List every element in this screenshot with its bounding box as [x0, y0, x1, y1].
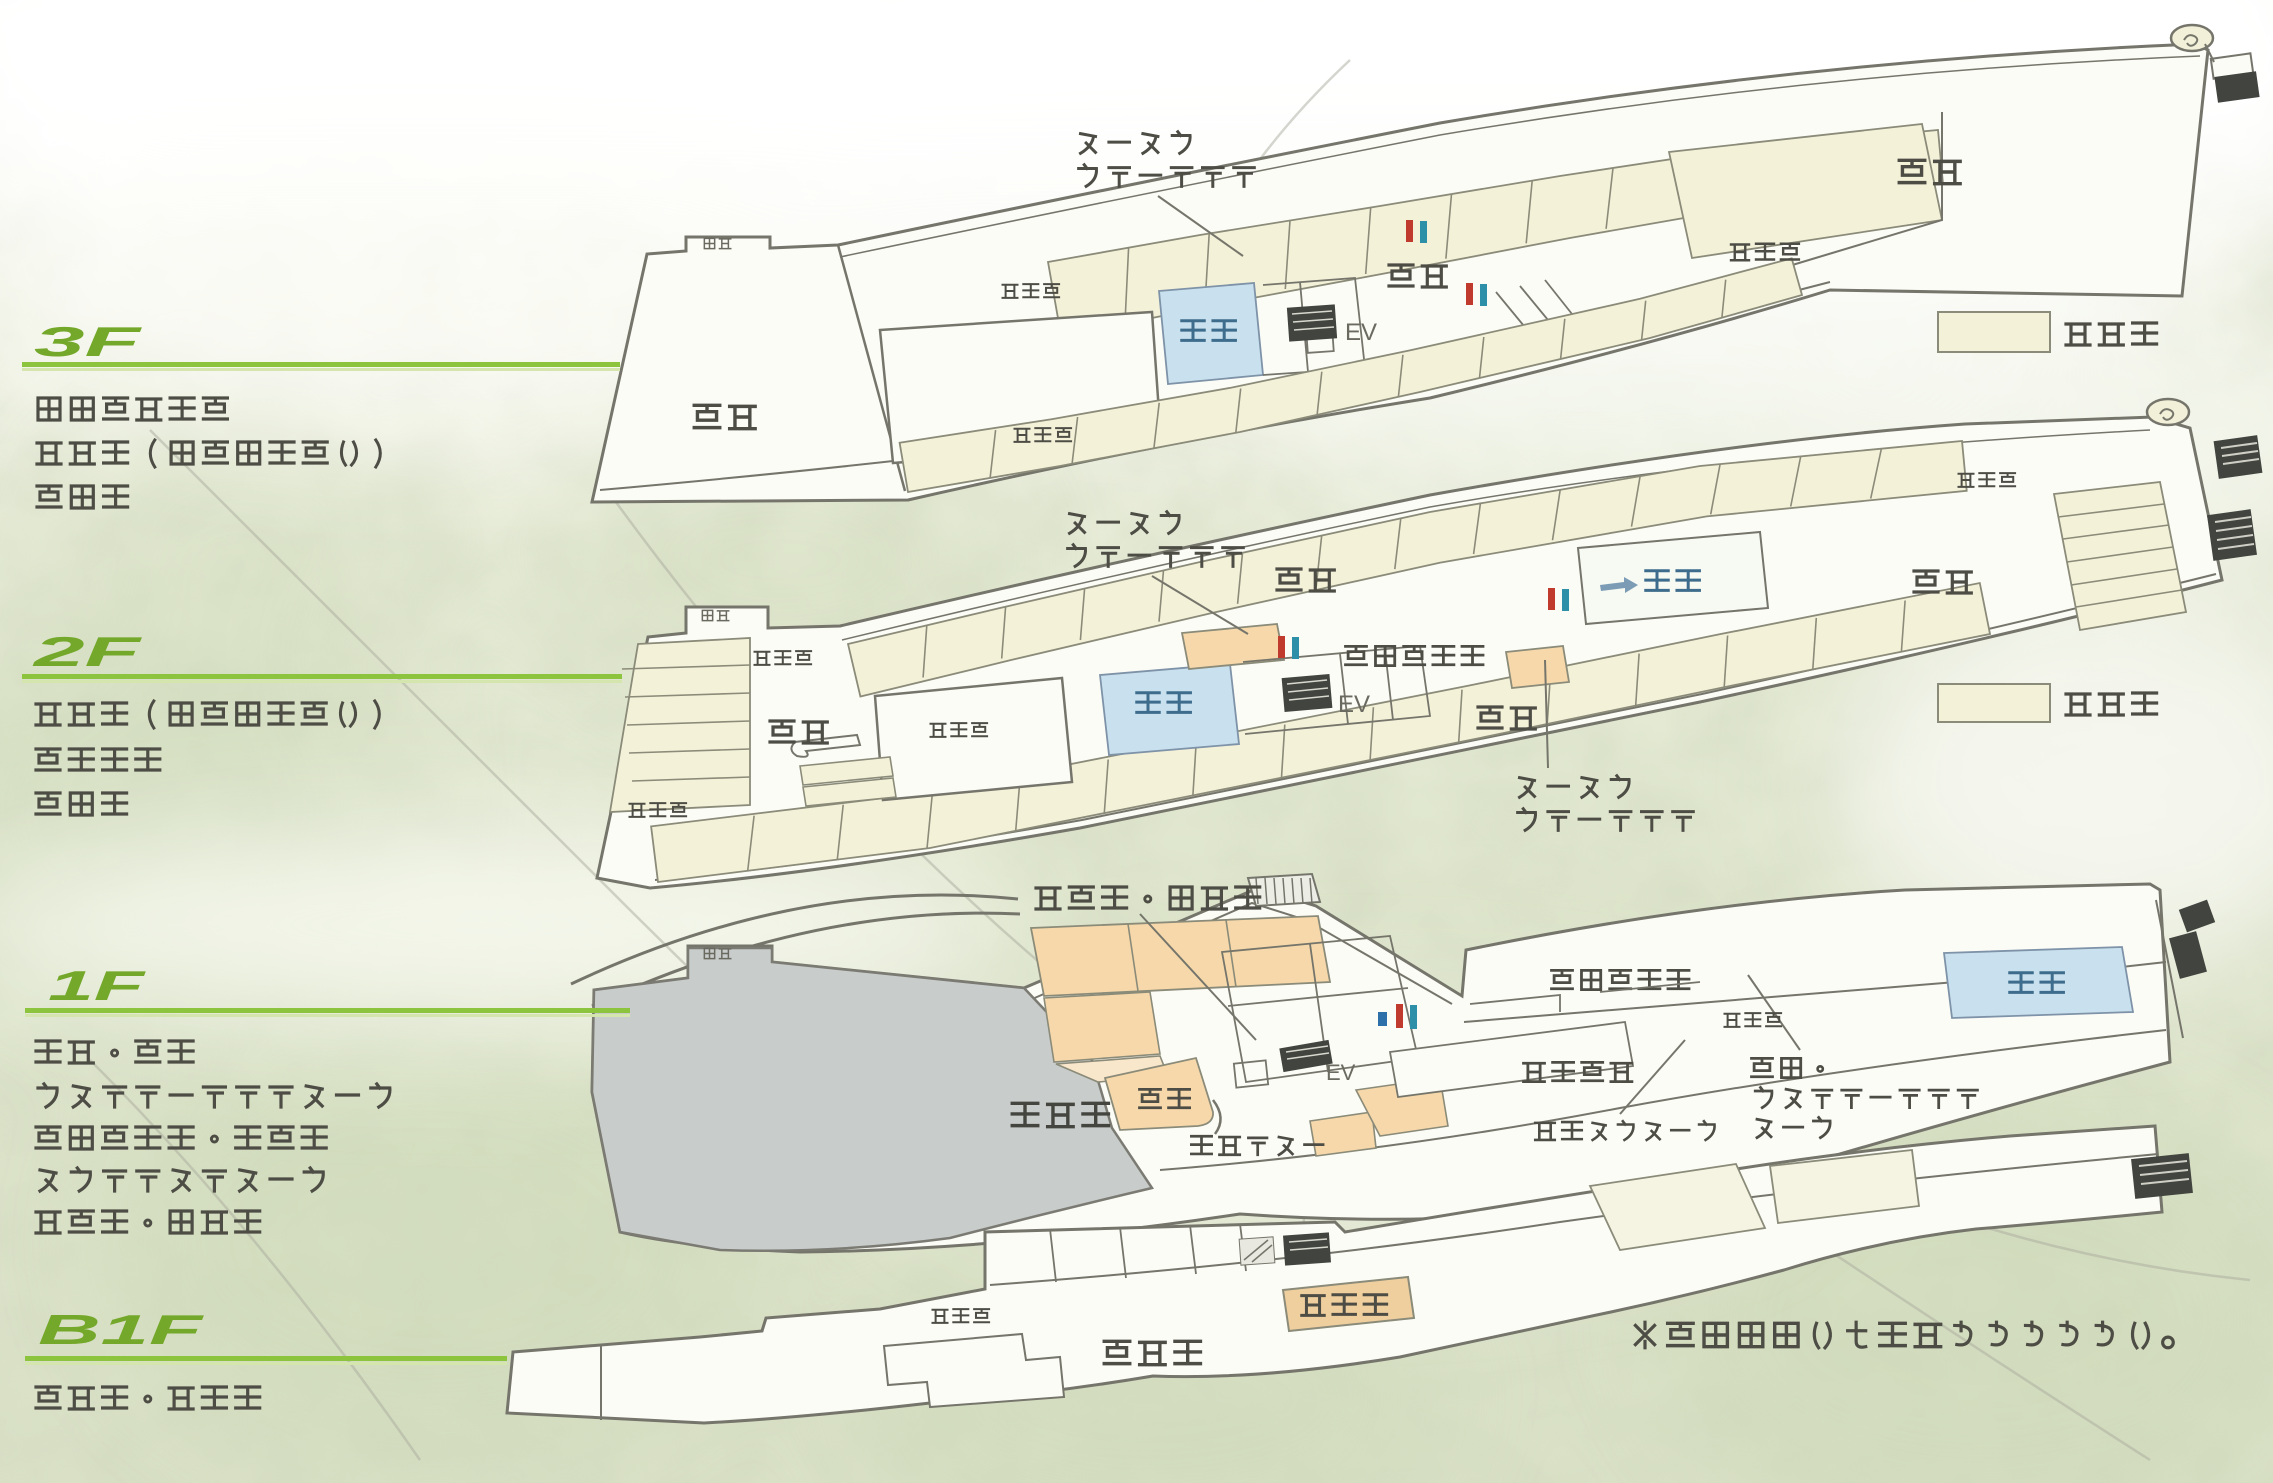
svg-text:3F: 3F [34, 318, 143, 365]
svg-text:EV: EV [1345, 319, 1377, 346]
svg-text:1F: 1F [48, 962, 147, 1009]
svg-text:2F: 2F [32, 628, 143, 675]
svg-text:EV: EV [1338, 691, 1370, 718]
svg-text:EV: EV [1326, 1060, 1356, 1085]
svg-text:B1F: B1F [38, 1306, 205, 1353]
